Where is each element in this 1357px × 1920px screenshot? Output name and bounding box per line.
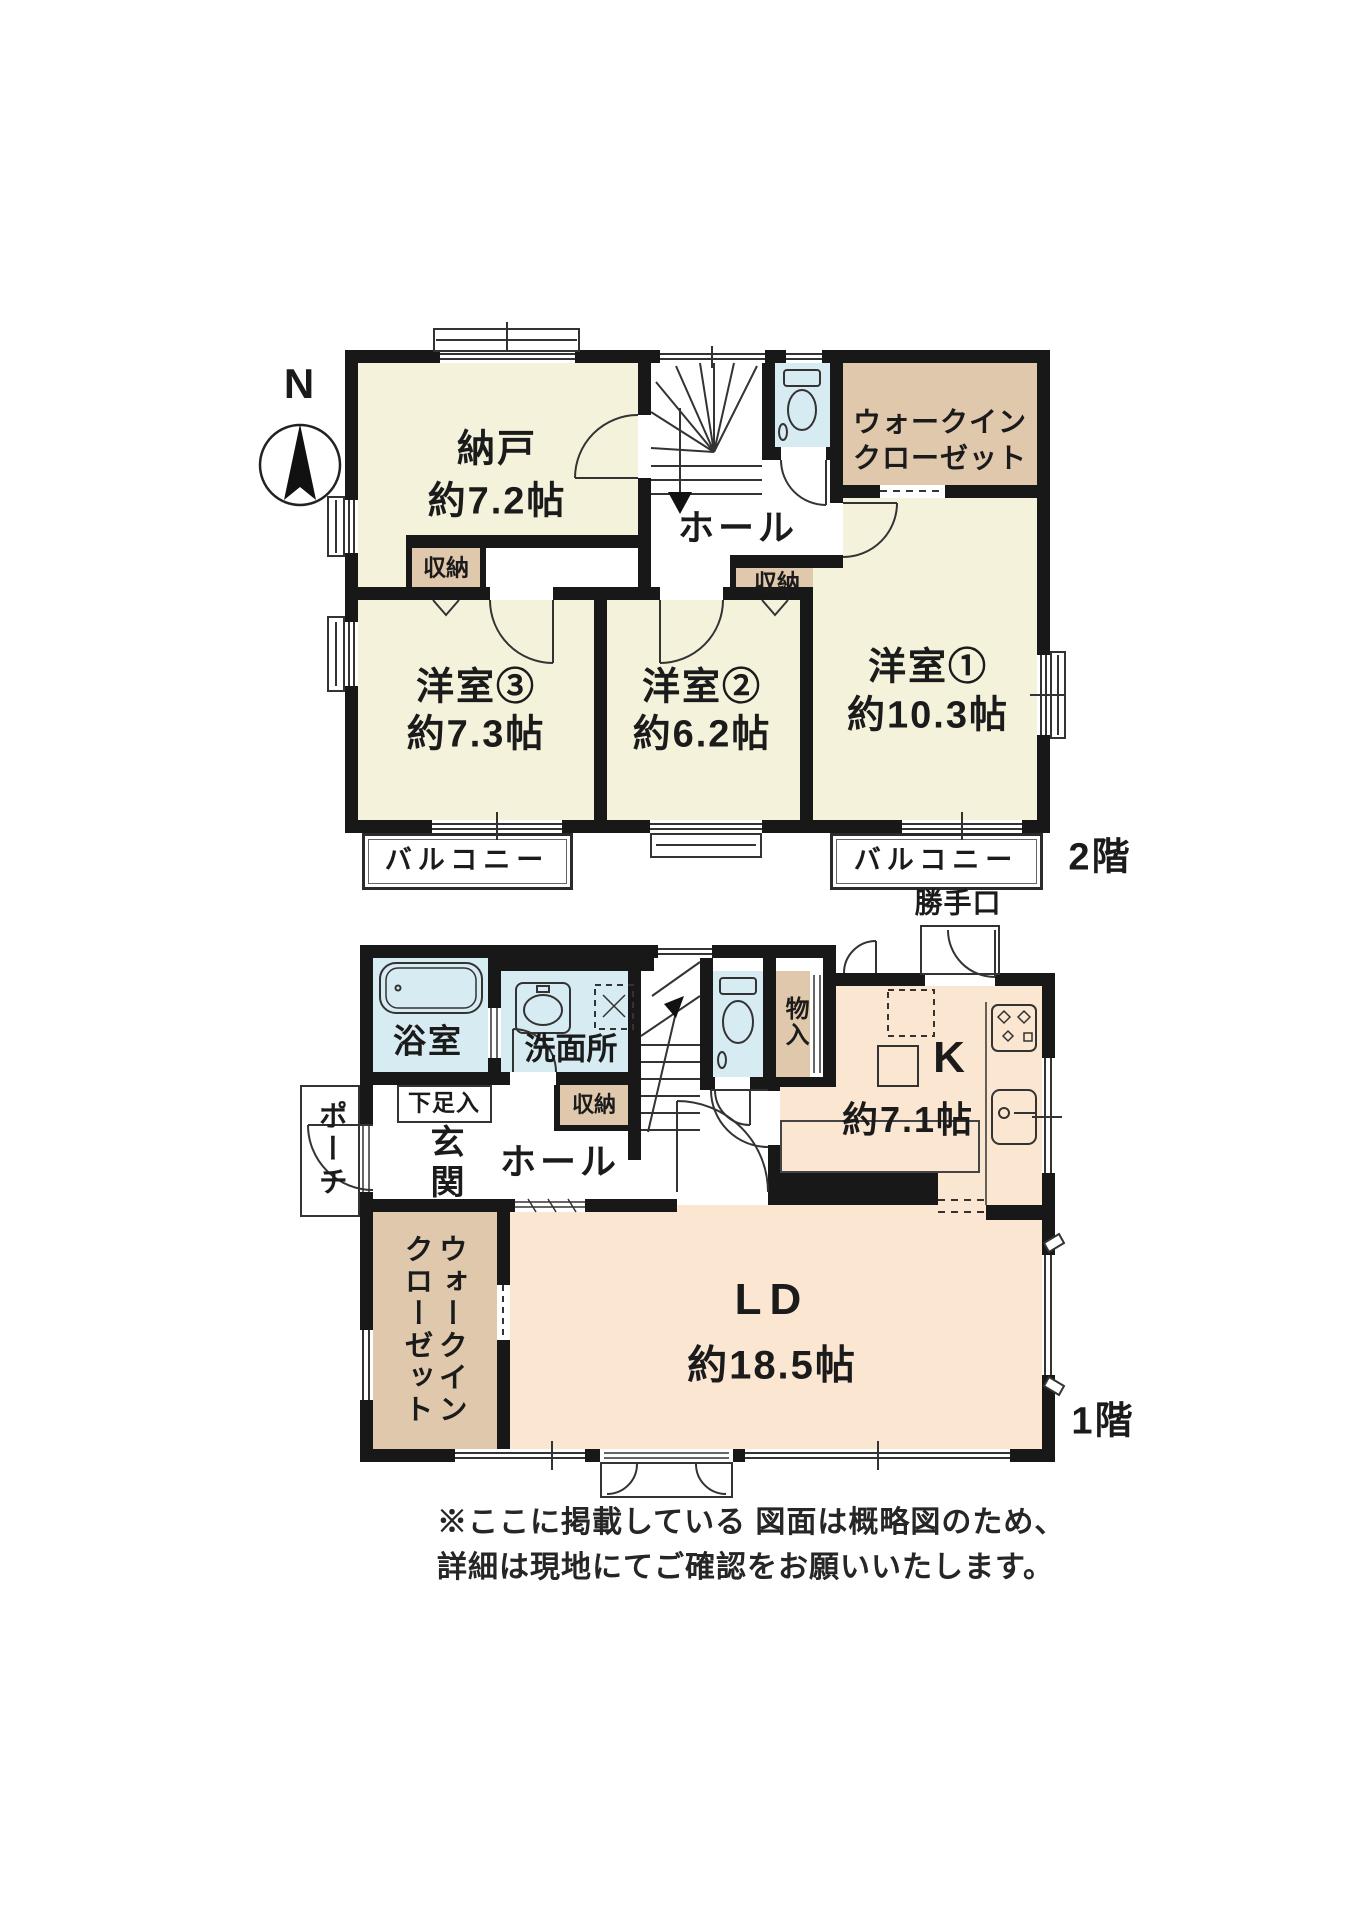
f2-wic-label: ウォークイン <box>853 405 1027 438</box>
f1-ld-size: 約18.5帖 <box>687 1342 857 1389</box>
f1-wic-line1: ウォークイン <box>433 1234 467 1426</box>
f2-storage-left-label: 収納 <box>423 554 469 581</box>
f1-shoe-box-label: 下足入 <box>408 1089 480 1116</box>
f1-genkan-label: 玄関 <box>424 1124 464 1204</box>
f2-room1-size: 約10.3帖 <box>847 694 1009 739</box>
f1-senmenjo-label: 洗面所 <box>525 1032 618 1069</box>
window-lines <box>363 949 1064 1470</box>
compass-north-label: N <box>284 359 316 409</box>
f1-floor-label: 1階 <box>1071 1400 1134 1445</box>
compass-icon <box>260 424 340 505</box>
stairs-1f <box>641 962 700 1132</box>
f1-ld-label: LD <box>735 1274 810 1326</box>
f1-wic-label: ウォークイン クローゼット <box>399 1234 467 1426</box>
f1-bath-label: 浴室 <box>393 1023 463 1062</box>
f2-room2-size: 約6.2帖 <box>633 713 772 758</box>
f2-balcony-left-label: バルコニー <box>385 845 549 877</box>
floor-plan-page: N 納戸 約7.2帖 ホール ウォークイン クローゼット 収納 収納 洋室③ 約… <box>0 0 1357 1920</box>
bathtub-icon <box>380 963 482 1013</box>
f2-floor-label: 2階 <box>1068 836 1131 881</box>
f1-wic-line2: クローゼット <box>399 1234 433 1426</box>
f2-room2-label: 洋室② <box>642 666 762 711</box>
kitchen-sink-icon <box>992 1090 1036 1144</box>
f1-porch-label: ポーチ <box>313 1101 347 1200</box>
f2-wic-label: クローゼット <box>853 441 1027 474</box>
window-lines <box>336 322 1066 845</box>
f2-balcony-right-label: バルコニー <box>854 845 1018 877</box>
f1-kitchen-size: 約7.1帖 <box>842 1099 974 1141</box>
toilet-icon-1f <box>718 978 756 1068</box>
disclaimer-line1: ※ここに掲載している 図面は概略図のため、 <box>437 1500 1065 1545</box>
fridge-space-icon <box>878 990 934 1086</box>
toilet-icon-2f <box>779 370 820 440</box>
vanity-sink-icon <box>516 983 570 1033</box>
f1-hall-label: ホール <box>500 1141 620 1183</box>
f2-room3-label: 洋室③ <box>416 666 536 711</box>
washer-space-icon <box>595 985 633 1029</box>
f2-storage-right-label: 収納 <box>754 569 800 596</box>
floorplan-line-art <box>0 0 1357 1920</box>
f2-room3-size: 約7.3帖 <box>407 713 546 758</box>
f1-storage-label: 収納 <box>572 1092 616 1118</box>
stove-icon <box>992 1005 1036 1051</box>
f2-nando-size: 約7.2帖 <box>428 480 567 525</box>
f1-kitchen-label: K <box>933 1032 967 1084</box>
f1-katteguchi-label: 勝手口 <box>914 886 1001 919</box>
f2-hall-label: ホール <box>678 507 798 549</box>
disclaimer-line2: 詳細は現地にてご確認をお願いいたします。 <box>437 1545 1065 1590</box>
disclaimer-note: ※ここに掲載している 図面は概略図のため、 詳細は現地にてご確認をお願いいたしま… <box>437 1500 1065 1590</box>
f2-room1-label: 洋室① <box>868 646 988 691</box>
f1-monoire-label: 物入 <box>780 996 808 1048</box>
stairs-2f <box>651 363 762 514</box>
f2-nando-label: 納戸 <box>457 428 537 473</box>
